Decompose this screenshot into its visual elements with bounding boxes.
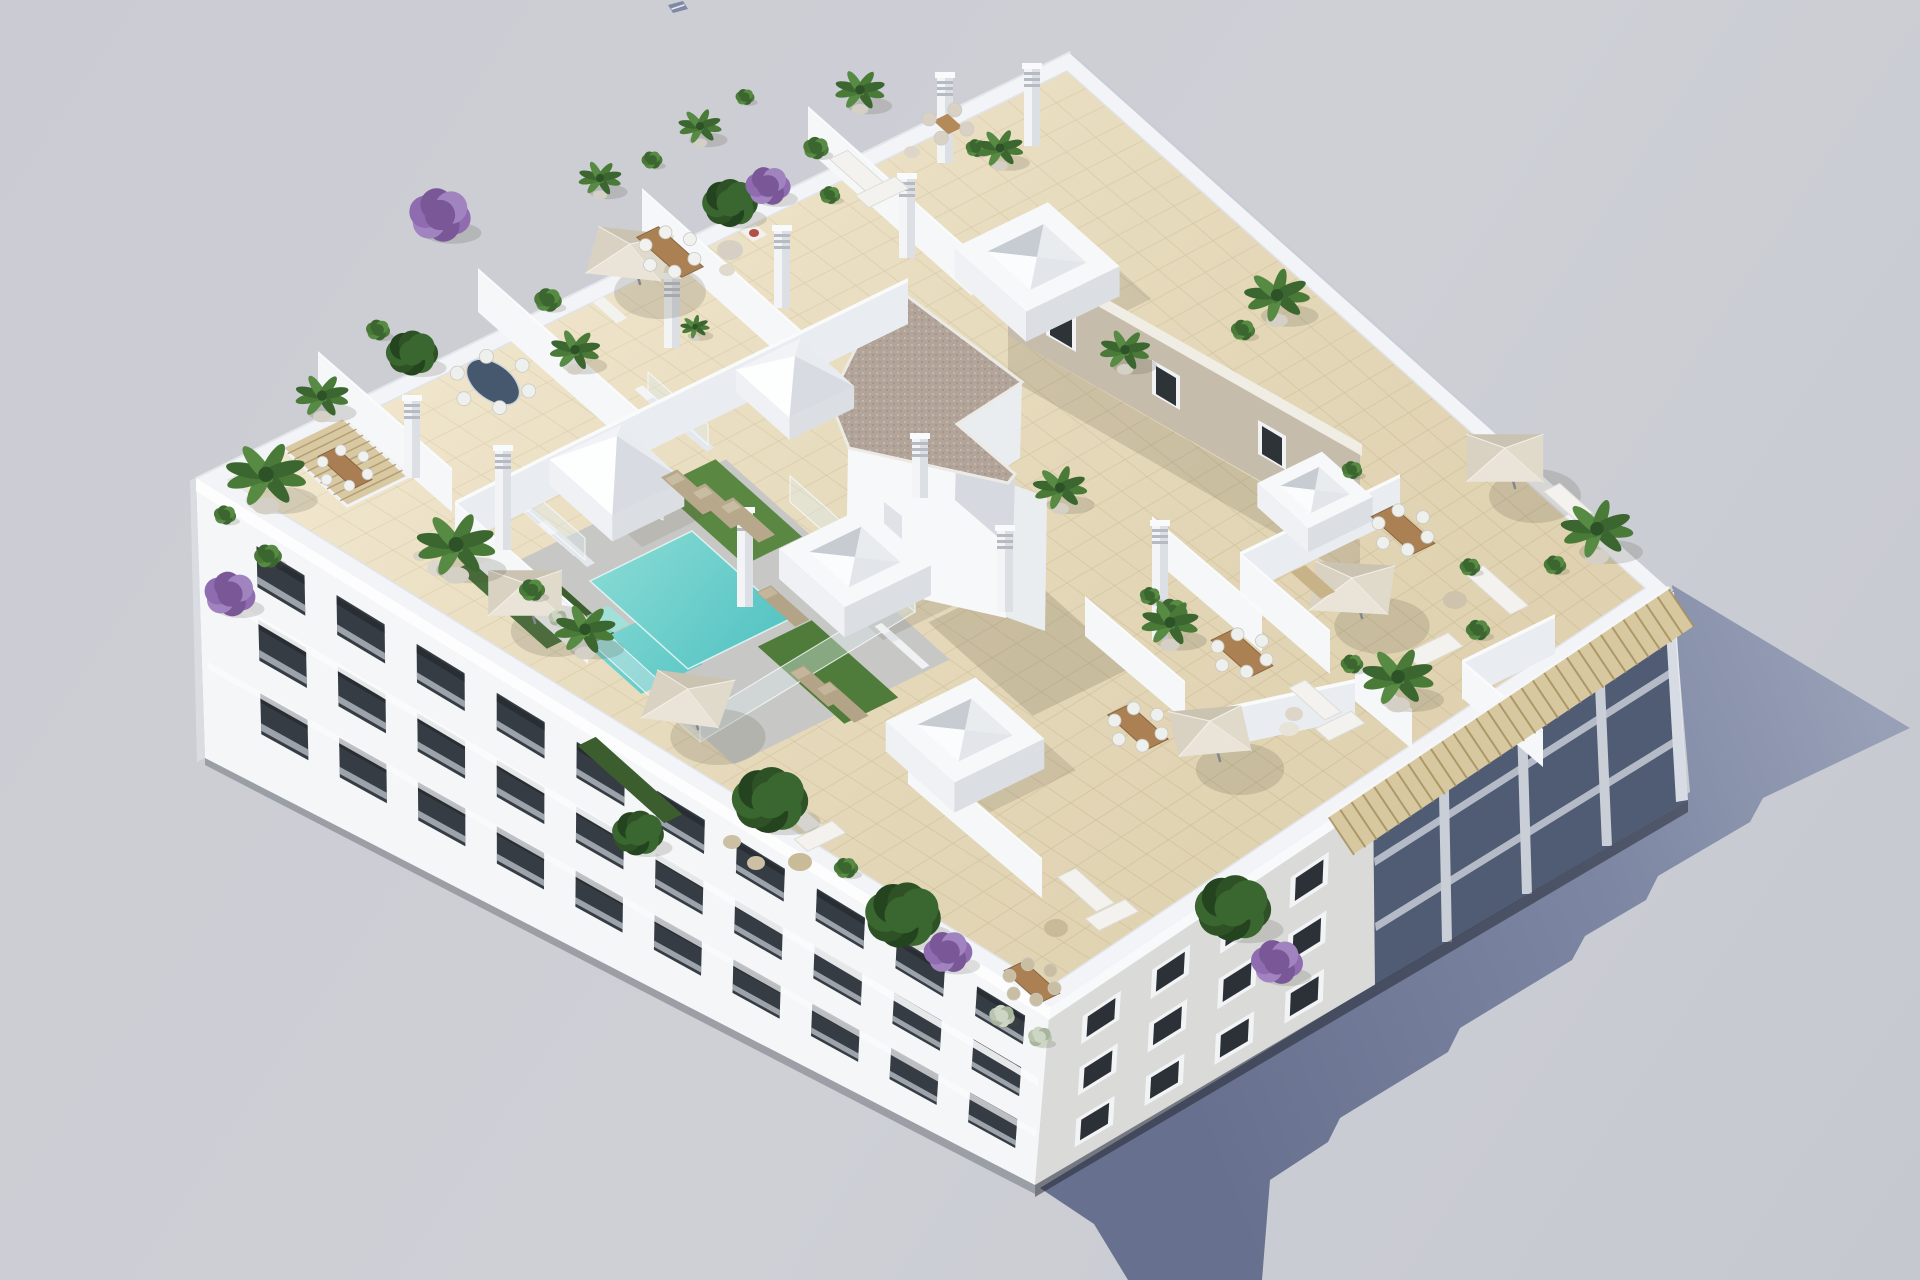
purple-bougainvillea-foliage xyxy=(936,940,960,964)
dining-chairs xyxy=(1151,708,1164,721)
armchairs xyxy=(960,122,974,136)
dining-chairs xyxy=(639,239,652,252)
vent-chimney-louvre xyxy=(997,540,1013,543)
wicker-dining-chairs xyxy=(1021,958,1034,971)
armchairs xyxy=(934,131,948,145)
shrub-foliage xyxy=(740,92,749,101)
white-shrub-foliage xyxy=(996,1010,1009,1023)
vent-chimney-louvre xyxy=(997,534,1013,537)
potted-palm-core xyxy=(258,467,273,482)
green-tree-foliage xyxy=(1215,890,1252,927)
vent-chimney xyxy=(912,438,920,498)
dining-chairs xyxy=(1240,665,1253,678)
purple-bougainvillea-foliage xyxy=(425,200,455,230)
dining-chairs xyxy=(317,456,328,467)
vent-chimney-cap xyxy=(772,225,792,231)
shrub-foliage xyxy=(1550,560,1561,571)
vent-chimney-louvre xyxy=(912,454,928,457)
render-stage xyxy=(0,0,1920,1280)
side-table xyxy=(1285,707,1303,721)
potted-palm-core xyxy=(1165,617,1176,628)
dining-chairs xyxy=(1392,504,1405,517)
vent-chimney-louvre xyxy=(495,460,511,463)
shrub-foliage xyxy=(526,584,539,597)
white-shrub-foliage xyxy=(1034,1031,1046,1043)
vent-chimney-louvre xyxy=(404,410,420,413)
dining-chairs xyxy=(1112,733,1125,746)
vent-chimney-louvre xyxy=(1152,541,1168,544)
dining-chairs xyxy=(1255,634,1268,647)
vent-chimney-louvre xyxy=(937,87,953,90)
wicker-dining-chairs xyxy=(1003,969,1016,982)
armchairs xyxy=(922,112,936,126)
vent-chimney-louvre xyxy=(404,404,420,407)
shrub-foliage xyxy=(541,293,554,306)
dining-chairs xyxy=(1216,659,1229,672)
red-cushion xyxy=(749,229,759,237)
vent-chimney-cap xyxy=(1150,520,1170,526)
shrub-foliage xyxy=(840,862,852,874)
shrub-foliage xyxy=(372,324,384,336)
vent-chimney-louvre xyxy=(1152,535,1168,538)
purple-bougainvillea-foliage xyxy=(217,581,242,606)
potted-palm-core xyxy=(1055,483,1065,493)
wicker-dining-chairs xyxy=(1007,987,1020,1000)
shrub-foliage xyxy=(261,549,274,562)
dining-chairs xyxy=(1416,511,1429,524)
dining-chairs xyxy=(644,258,657,271)
dining-chairs xyxy=(668,265,681,278)
shrub-foliage xyxy=(1347,659,1358,670)
dining-chairs xyxy=(688,252,701,265)
purple-bougainvillea-foliage xyxy=(757,175,779,197)
green-tree-foliage xyxy=(885,897,922,934)
dining-chairs xyxy=(1127,702,1140,715)
dining-chairs xyxy=(1377,536,1390,549)
dining-chairs xyxy=(1260,653,1273,666)
vent-chimney xyxy=(920,438,928,498)
banana-palm-core xyxy=(1391,670,1405,684)
armchairs xyxy=(948,103,962,117)
potted-palm-core xyxy=(570,345,580,355)
pouf xyxy=(1279,722,1299,736)
wicker-chair xyxy=(747,856,765,870)
vent-chimney-cap xyxy=(910,433,930,439)
vent-chimney-louvre xyxy=(404,416,420,419)
dining-chairs xyxy=(515,358,529,372)
vent-chimney xyxy=(495,450,503,550)
dining-chairs xyxy=(493,401,507,415)
banana-palm-core xyxy=(579,624,591,636)
dining-chairs xyxy=(522,384,536,398)
potted-palm-core xyxy=(855,85,865,95)
vent-chimney-louvre xyxy=(937,81,953,84)
shrub-foliage xyxy=(220,510,231,521)
vent-chimney-louvre xyxy=(1152,529,1168,532)
potted-shrub-foliage xyxy=(1465,562,1475,572)
dining-chairs xyxy=(457,392,471,406)
dining-chairs xyxy=(321,474,332,485)
shrub-foliage xyxy=(647,155,657,165)
dining-chairs xyxy=(659,226,672,239)
potted-palm-core xyxy=(1120,345,1130,355)
potted-palm-core xyxy=(1590,522,1604,536)
vent-chimney-cap xyxy=(935,72,955,78)
vent-chimney-louvre xyxy=(495,454,511,457)
wicker-dining-chairs xyxy=(1048,982,1061,995)
potted-palm-core xyxy=(696,122,704,130)
dining-chairs xyxy=(335,445,346,456)
vent-chimney-louvre xyxy=(899,194,915,197)
potted-shrub-foliage xyxy=(1145,591,1155,601)
shrub-foliage xyxy=(810,142,823,155)
dining-chairs xyxy=(683,233,696,246)
vent-chimney-louvre xyxy=(774,246,790,249)
shrub-foliage xyxy=(1237,324,1249,336)
potted-palm-core xyxy=(1271,289,1283,301)
vent-chimney-cap xyxy=(493,445,513,451)
round-table xyxy=(1044,919,1068,937)
dining-chairs xyxy=(344,480,355,491)
vent-chimney-louvre xyxy=(774,240,790,243)
round-table xyxy=(788,853,812,871)
dining-chairs xyxy=(1231,628,1244,641)
vent-chimney-louvre xyxy=(1024,78,1040,81)
vent-chimney-louvre xyxy=(912,448,928,451)
potted-shrub-foliage xyxy=(825,190,835,200)
vent-chimney-louvre xyxy=(495,466,511,469)
wicker-dining-chairs xyxy=(1044,964,1057,977)
potted-palm-core xyxy=(317,391,327,401)
pouf xyxy=(904,146,920,158)
wicker-dining-chairs xyxy=(1030,993,1043,1006)
vent-chimney-louvre xyxy=(774,234,790,237)
green-tree-foliage xyxy=(717,190,744,217)
vent-chimney-louvre xyxy=(1024,84,1040,87)
dining-chairs xyxy=(362,469,373,480)
potted-palm-core xyxy=(596,174,604,182)
vent-chimney-cap xyxy=(1022,63,1042,69)
potted-palm-core xyxy=(692,324,697,329)
green-tree-foliage xyxy=(625,820,650,845)
dining-chairs xyxy=(1211,640,1224,653)
aerial-building-render xyxy=(0,0,1920,1280)
green-tree-foliage xyxy=(752,782,789,819)
dining-chairs xyxy=(358,451,369,462)
dining-chairs xyxy=(1155,727,1168,740)
dining-chairs xyxy=(1421,530,1434,543)
pouf xyxy=(719,264,735,276)
vent-chimney-cap xyxy=(402,395,422,401)
dining-chairs xyxy=(1372,517,1385,530)
vent-chimney xyxy=(503,450,511,550)
vent-chimney-louvre xyxy=(912,442,928,445)
potted-palm-pot xyxy=(313,411,331,422)
stone-table xyxy=(717,240,743,260)
green-tree-foliage xyxy=(399,340,424,365)
round-table xyxy=(1443,591,1467,609)
banana-palm-core xyxy=(449,537,464,552)
vent-chimney-cap xyxy=(995,525,1015,531)
potted-shrub-foliage xyxy=(1347,465,1357,475)
dining-chairs xyxy=(1108,714,1121,727)
dining-chairs xyxy=(450,366,464,380)
potted-palm-pot xyxy=(852,104,869,115)
dining-chairs xyxy=(1401,543,1414,556)
vent-chimney-cap xyxy=(897,173,917,179)
dining-chairs xyxy=(479,349,493,363)
potted-palm-core xyxy=(996,144,1005,153)
shrub-foliage xyxy=(1472,624,1484,636)
vent-chimney-louvre xyxy=(937,93,953,96)
purple-bougainvillea-foliage xyxy=(1264,949,1289,974)
dining-chairs xyxy=(1136,739,1149,752)
vent-chimney-louvre xyxy=(1024,72,1040,75)
wicker-chair xyxy=(723,835,741,849)
vent-chimney-louvre xyxy=(997,546,1013,549)
